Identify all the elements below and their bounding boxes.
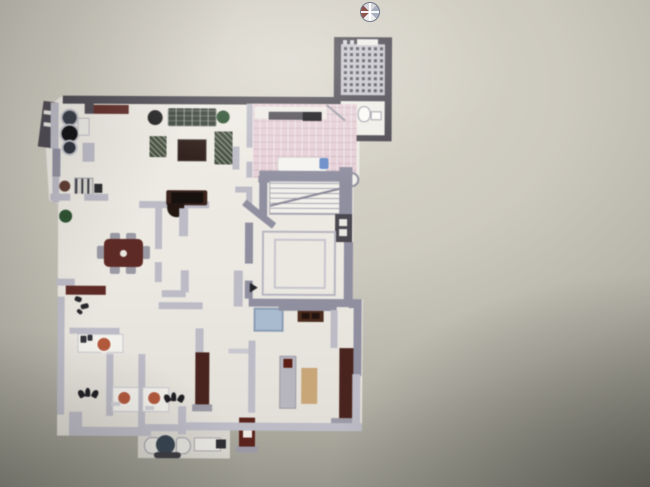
floor-object (85, 388, 90, 397)
wall-segment (57, 279, 75, 286)
counter-black (303, 112, 322, 121)
wardrobe (195, 352, 209, 405)
dining-chair (110, 266, 120, 274)
sideboard (66, 286, 106, 295)
wall-segment (248, 341, 255, 413)
small-cabinet (94, 184, 102, 193)
window-slot (357, 39, 378, 45)
vanity-sink (148, 392, 160, 404)
table-centerpiece (120, 250, 127, 257)
cooktop-burner (63, 111, 77, 125)
sink (371, 111, 382, 120)
bath-accessory (80, 336, 86, 343)
cabinet-accent (283, 359, 292, 368)
vanity-sink (97, 338, 110, 351)
counter-dark (269, 112, 303, 120)
wall-segment (159, 302, 203, 309)
floor-plan-photo (0, 0, 650, 487)
counter-red (94, 105, 129, 114)
wall-segment (232, 147, 239, 170)
armchair (214, 131, 232, 164)
wall-niche (339, 219, 347, 226)
grill-base (236, 447, 258, 453)
bath-mat (111, 402, 120, 406)
wall-segment (234, 271, 243, 307)
stool-round (59, 181, 70, 192)
window-dot (343, 40, 347, 44)
wall-segment (245, 223, 253, 264)
tv-desk-top (171, 192, 203, 203)
dresser-drawer (312, 313, 320, 319)
plant (217, 110, 230, 123)
wall-segment (52, 149, 60, 177)
entry-grate-stair (341, 44, 385, 95)
bed-inner (274, 239, 326, 289)
cooktop-burner (63, 142, 75, 154)
wall-segment (330, 310, 337, 348)
wall-segment (339, 167, 352, 219)
wall-segment (246, 162, 252, 178)
wardrobe-base (192, 404, 212, 411)
wall-segment (184, 422, 362, 431)
wall-segment (144, 424, 180, 431)
wall-segment (259, 178, 267, 218)
shower-tray (254, 308, 284, 332)
wall-segment (155, 206, 162, 249)
wall-segment (385, 37, 393, 141)
wall-segment (179, 208, 188, 236)
floor-plan (0, 0, 650, 487)
island-sink-blue (319, 158, 328, 169)
toilet (358, 106, 371, 122)
coffee-table (177, 139, 206, 161)
wall-segment (344, 242, 353, 302)
kitchen-sink-round (62, 126, 78, 142)
floor-object (171, 392, 176, 401)
window-dot (350, 40, 354, 44)
tan-door (301, 368, 317, 404)
bath-accessory (87, 335, 92, 341)
wall-niche (339, 229, 347, 236)
door-arrow (250, 283, 258, 293)
wall-segment (85, 102, 94, 114)
armchair (149, 136, 166, 157)
wall-segment (247, 104, 253, 148)
wall-segment (50, 103, 58, 149)
terrace-bench-small (154, 452, 181, 458)
compass-rose-icon (360, 2, 380, 22)
wall-segment (279, 303, 337, 311)
wall-segment (57, 297, 65, 415)
sofa (168, 108, 217, 126)
wall-segment (259, 171, 347, 178)
wall-segment (352, 374, 360, 424)
wall-segment (155, 262, 162, 282)
compass-cross-v (369, 3, 371, 21)
plant (59, 210, 72, 223)
dining-chair (126, 266, 136, 274)
wall-segment (82, 143, 94, 162)
bath-mat (145, 406, 154, 410)
dining-chair (142, 246, 150, 259)
wall-segment (353, 306, 361, 376)
door-opening (70, 194, 84, 201)
wall-segment (195, 328, 203, 353)
dresser-drawer (302, 313, 310, 319)
wall-segment (181, 270, 189, 292)
planter-black (148, 110, 163, 125)
bench-cushion (216, 439, 226, 448)
wall-segment (69, 427, 151, 436)
kitchen-appliance (78, 118, 90, 136)
